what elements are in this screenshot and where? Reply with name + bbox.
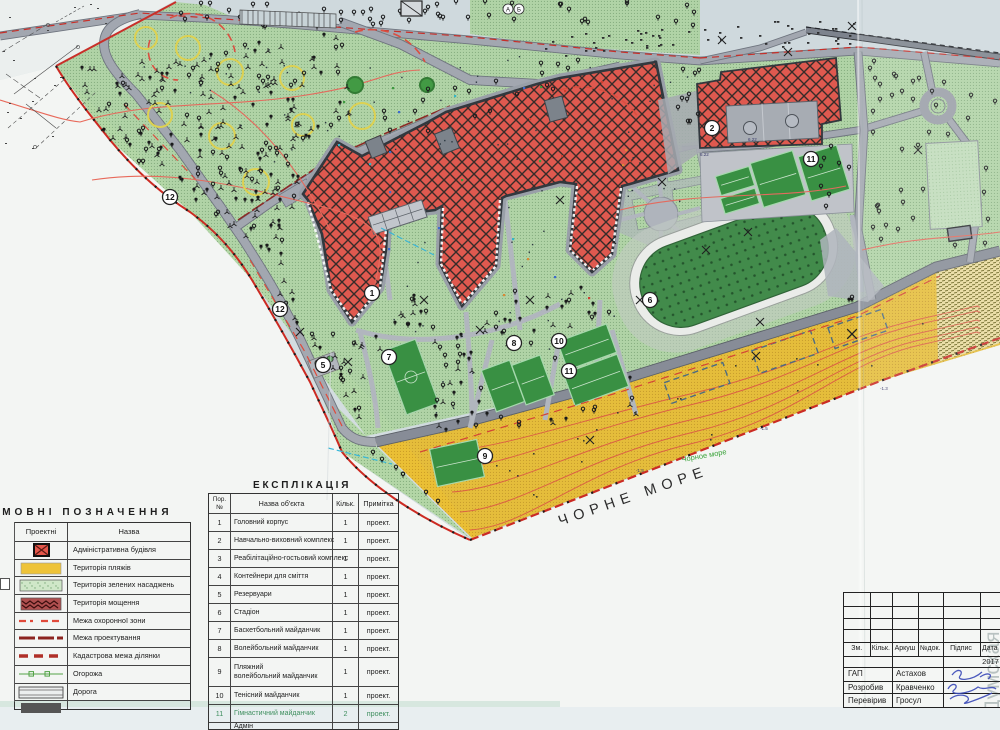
svg-text:11: 11	[565, 366, 574, 376]
svg-text:12: 12	[165, 192, 175, 202]
svg-text:5: 5	[321, 360, 326, 370]
svg-text:6: 6	[648, 295, 653, 305]
svg-text:9: 9	[483, 451, 488, 461]
svg-text:7: 7	[387, 352, 392, 362]
svg-text:1: 1	[370, 288, 375, 298]
svg-text:10: 10	[554, 336, 564, 346]
svg-text:2: 2	[710, 123, 715, 133]
svg-text:12: 12	[275, 304, 285, 314]
svg-text:11: 11	[807, 154, 816, 164]
svg-text:8: 8	[512, 338, 517, 348]
